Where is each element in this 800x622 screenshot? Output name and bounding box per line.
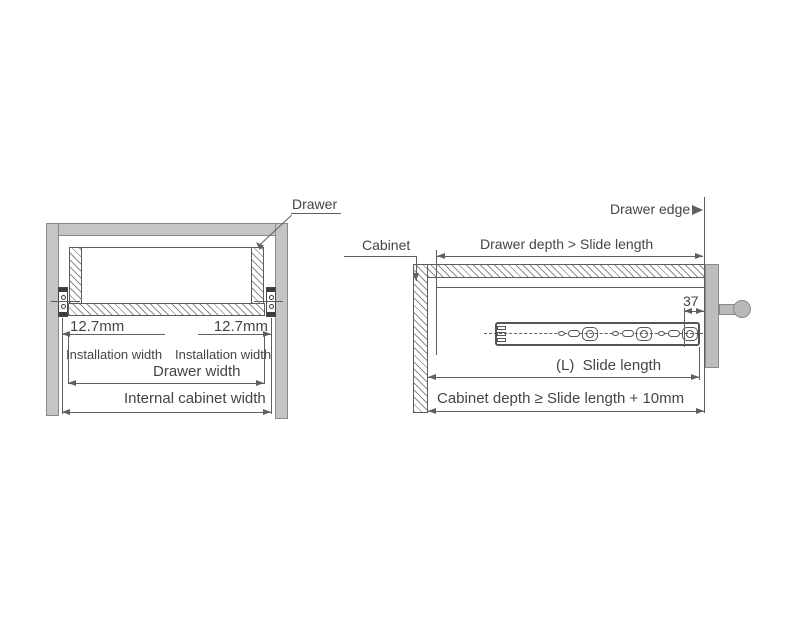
installation-diagram: 12.7mm 12.7mm Installation width Install… [0, 0, 800, 622]
internal-cabinet-width-label: Internal cabinet width [124, 390, 266, 407]
drawer-depth-label: Drawer depth > Slide length [480, 236, 653, 252]
slide-slot-hole [686, 330, 694, 338]
slide-slot-hole [640, 330, 648, 338]
slide-bearing-right [266, 287, 276, 317]
cabinet-top-panel [46, 223, 288, 236]
dim-arrow-icon [696, 408, 704, 414]
dim-arrow-icon [428, 374, 436, 380]
dim-arrow-icon [62, 331, 70, 337]
bearing-centerline-left [51, 301, 80, 302]
cabinet-left-panel [46, 223, 59, 416]
drawer-callout-underline [291, 213, 341, 214]
drawer-width-dim-line [68, 383, 264, 384]
dim-arrow-icon [437, 253, 445, 259]
drawer-depth-dim-line [437, 256, 703, 257]
front-offset-label: 37 [683, 293, 699, 309]
bearing-centerline-right [254, 301, 283, 302]
slide-slot [558, 331, 565, 336]
dim-arrow-icon [696, 308, 704, 314]
slide-end-notch [497, 326, 506, 330]
gap-label-right: 12.7mm [198, 318, 268, 335]
extension-line [271, 318, 272, 414]
dim-arrow-icon [256, 380, 264, 386]
drawer-side-right [251, 247, 264, 304]
dim-arrow-icon [691, 374, 699, 380]
slide-length-dim-line [428, 377, 699, 378]
bearing-cap [267, 288, 275, 292]
drawer-handle-knob [733, 300, 751, 318]
slide-slot [622, 330, 634, 337]
bearing-ball [269, 295, 274, 300]
drawer-side-top-line [436, 287, 704, 288]
cabinet-depth-label: Cabinet depth ≥ Slide length + 10mm [437, 390, 684, 407]
slide-end-notch [497, 338, 506, 342]
slide-slot [668, 330, 680, 337]
slide-length-label: (L) Slide length [556, 357, 661, 374]
installation-width-label-right: Installation width [175, 347, 271, 362]
cabinet-back-wall [413, 264, 428, 413]
drawer-top-edge [82, 247, 251, 248]
drawer-bottom-panel [68, 303, 265, 316]
drawer-side-left [69, 247, 82, 304]
bearing-ball [61, 295, 66, 300]
dim-arrow-icon [695, 253, 703, 259]
slide-bearing-left [58, 287, 68, 317]
cabinet-callout-label: Cabinet [362, 237, 410, 253]
dim-arrow-icon [263, 409, 271, 415]
cabinet-right-panel [275, 223, 288, 419]
bearing-cap [267, 312, 275, 316]
slide-slot [568, 330, 580, 337]
leader-arrow-icon [413, 273, 419, 281]
cabinet-top-rail [413, 264, 705, 278]
bearing-cap [59, 312, 67, 316]
bearing-ball [61, 304, 66, 309]
slide-slot [658, 331, 665, 336]
slide-slot-hole [586, 330, 594, 338]
cabinet-callout-underline [344, 256, 417, 257]
drawer-front-panel [705, 264, 719, 368]
drawer-edge-label: Drawer edge [610, 201, 690, 217]
drawer-width-label: Drawer width [153, 363, 241, 380]
drawer-edge-arrow-icon [692, 205, 703, 215]
dim-arrow-icon [68, 380, 76, 386]
drawer-back-line [436, 250, 437, 355]
dim-arrow-icon [428, 408, 436, 414]
dim-arrow-icon [684, 308, 692, 314]
drawer-callout-label: Drawer [292, 196, 337, 212]
cabinet-depth-dim-line [428, 411, 704, 412]
slide-slot [612, 331, 619, 336]
internal-width-dim-line [62, 412, 271, 413]
extension-line [699, 347, 700, 380]
dim-arrow-icon [62, 409, 70, 415]
installation-width-label-left: Installation width [66, 347, 162, 362]
bearing-ball [269, 304, 274, 309]
bearing-cap [59, 288, 67, 292]
gap-label-left: 12.7mm [70, 318, 124, 335]
